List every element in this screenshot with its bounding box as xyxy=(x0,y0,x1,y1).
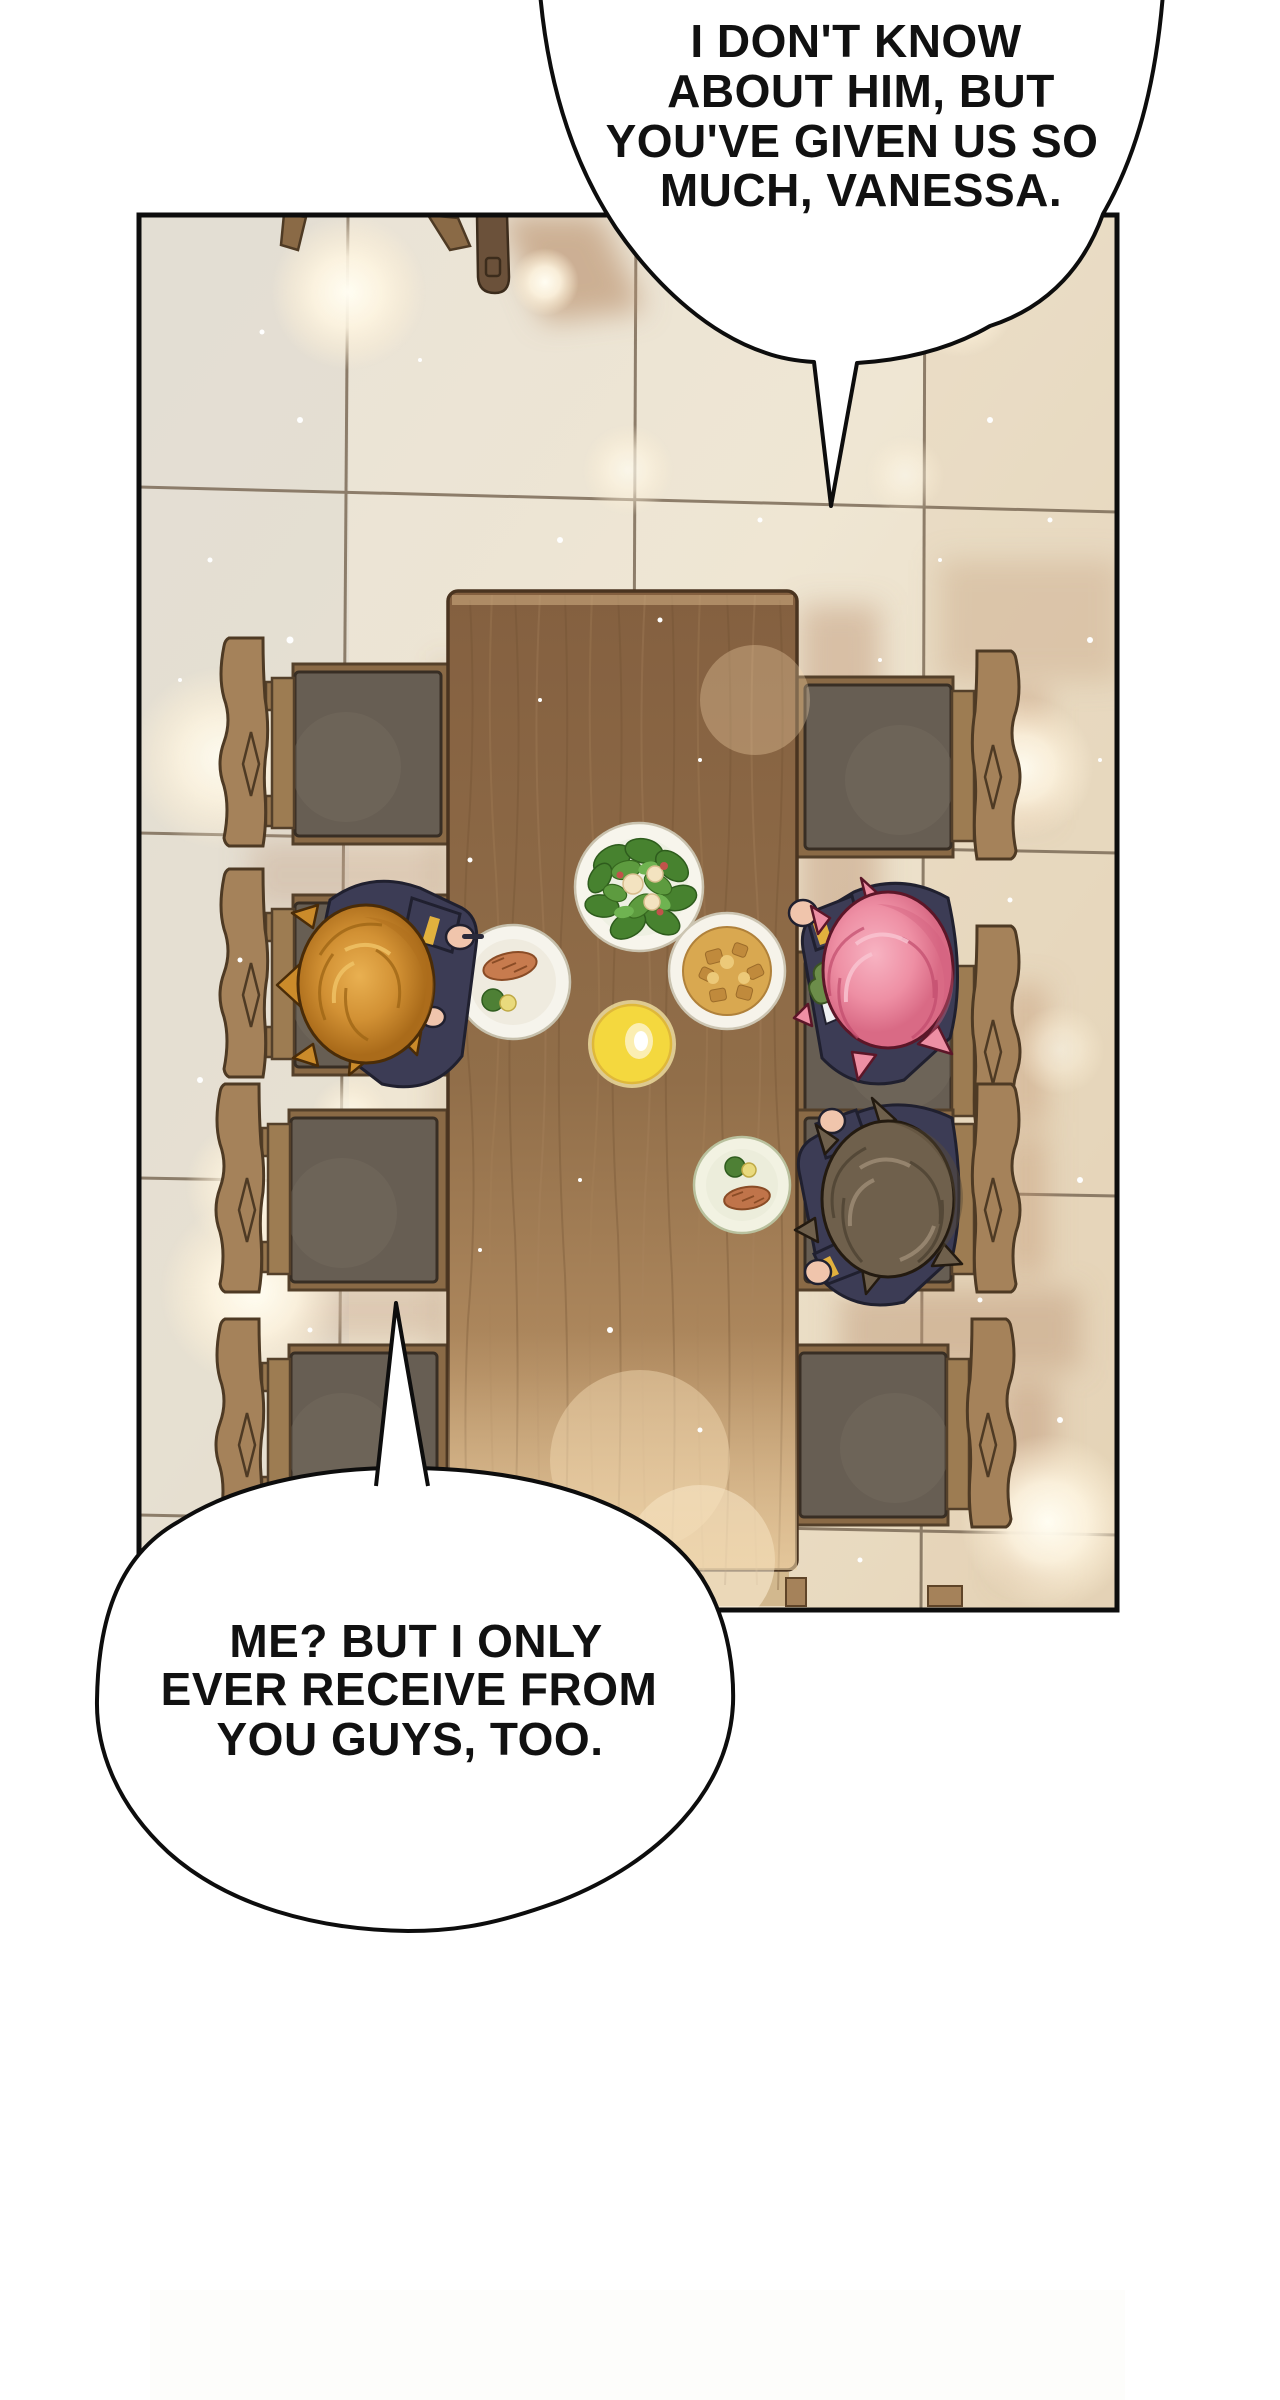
svg-text:ME? BUT I ONLY: ME? BUT I ONLY xyxy=(229,1615,602,1667)
svg-text:ABOUT HIM, BUT: ABOUT HIM, BUT xyxy=(667,65,1055,117)
svg-text:EVER RECEIVE FROM: EVER RECEIVE FROM xyxy=(161,1663,658,1715)
svg-text:YOU GUYS, TOO.: YOU GUYS, TOO. xyxy=(217,1713,604,1765)
svg-text:MUCH, VANESSA.: MUCH, VANESSA. xyxy=(660,164,1062,216)
svg-text:YOU'VE GIVEN US SO: YOU'VE GIVEN US SO xyxy=(606,115,1099,167)
svg-text:I DON'T KNOW: I DON'T KNOW xyxy=(690,15,1021,67)
